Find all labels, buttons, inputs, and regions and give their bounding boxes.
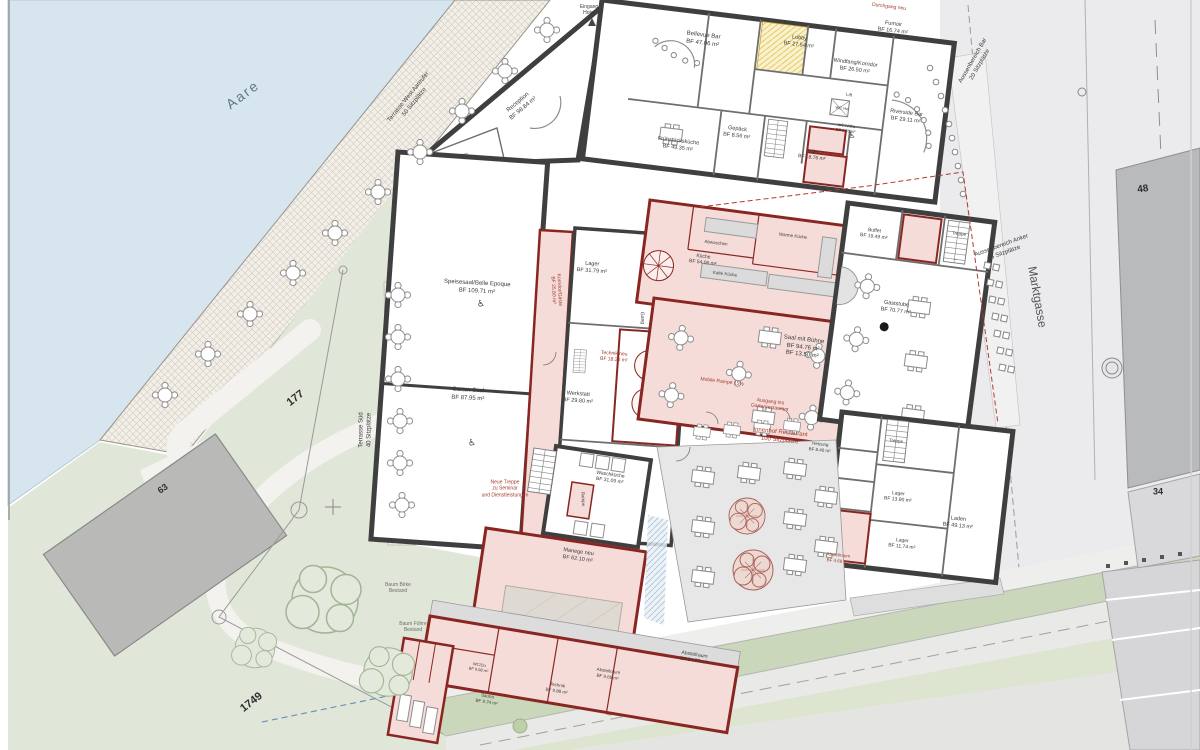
west-wing bbox=[371, 152, 548, 550]
lobby-room bbox=[757, 22, 809, 75]
site-plan-drawing bbox=[0, 0, 1200, 750]
wc-altbau-room bbox=[898, 214, 941, 263]
planned-area-hatch bbox=[644, 515, 668, 625]
building-48 bbox=[1116, 148, 1200, 488]
se-wing bbox=[825, 412, 1013, 582]
site-plan: Aare Terrasse West Aareufer 50 Sitzplätz… bbox=[0, 0, 1200, 750]
stairs-icon bbox=[764, 119, 788, 158]
lift-icon bbox=[830, 99, 850, 117]
waschkueche-block bbox=[543, 446, 651, 547]
gaststube-block bbox=[820, 203, 995, 438]
chestnut-tree bbox=[733, 550, 773, 590]
wc-iv-room bbox=[803, 152, 846, 187]
chestnut-tree bbox=[729, 498, 765, 534]
wc-herren-room bbox=[807, 126, 846, 154]
stairs-icon bbox=[883, 419, 909, 463]
hotel-north-wing bbox=[583, 0, 955, 202]
rampe-strip bbox=[567, 482, 594, 519]
stairs-icon bbox=[573, 349, 587, 373]
courtyard bbox=[657, 418, 846, 622]
